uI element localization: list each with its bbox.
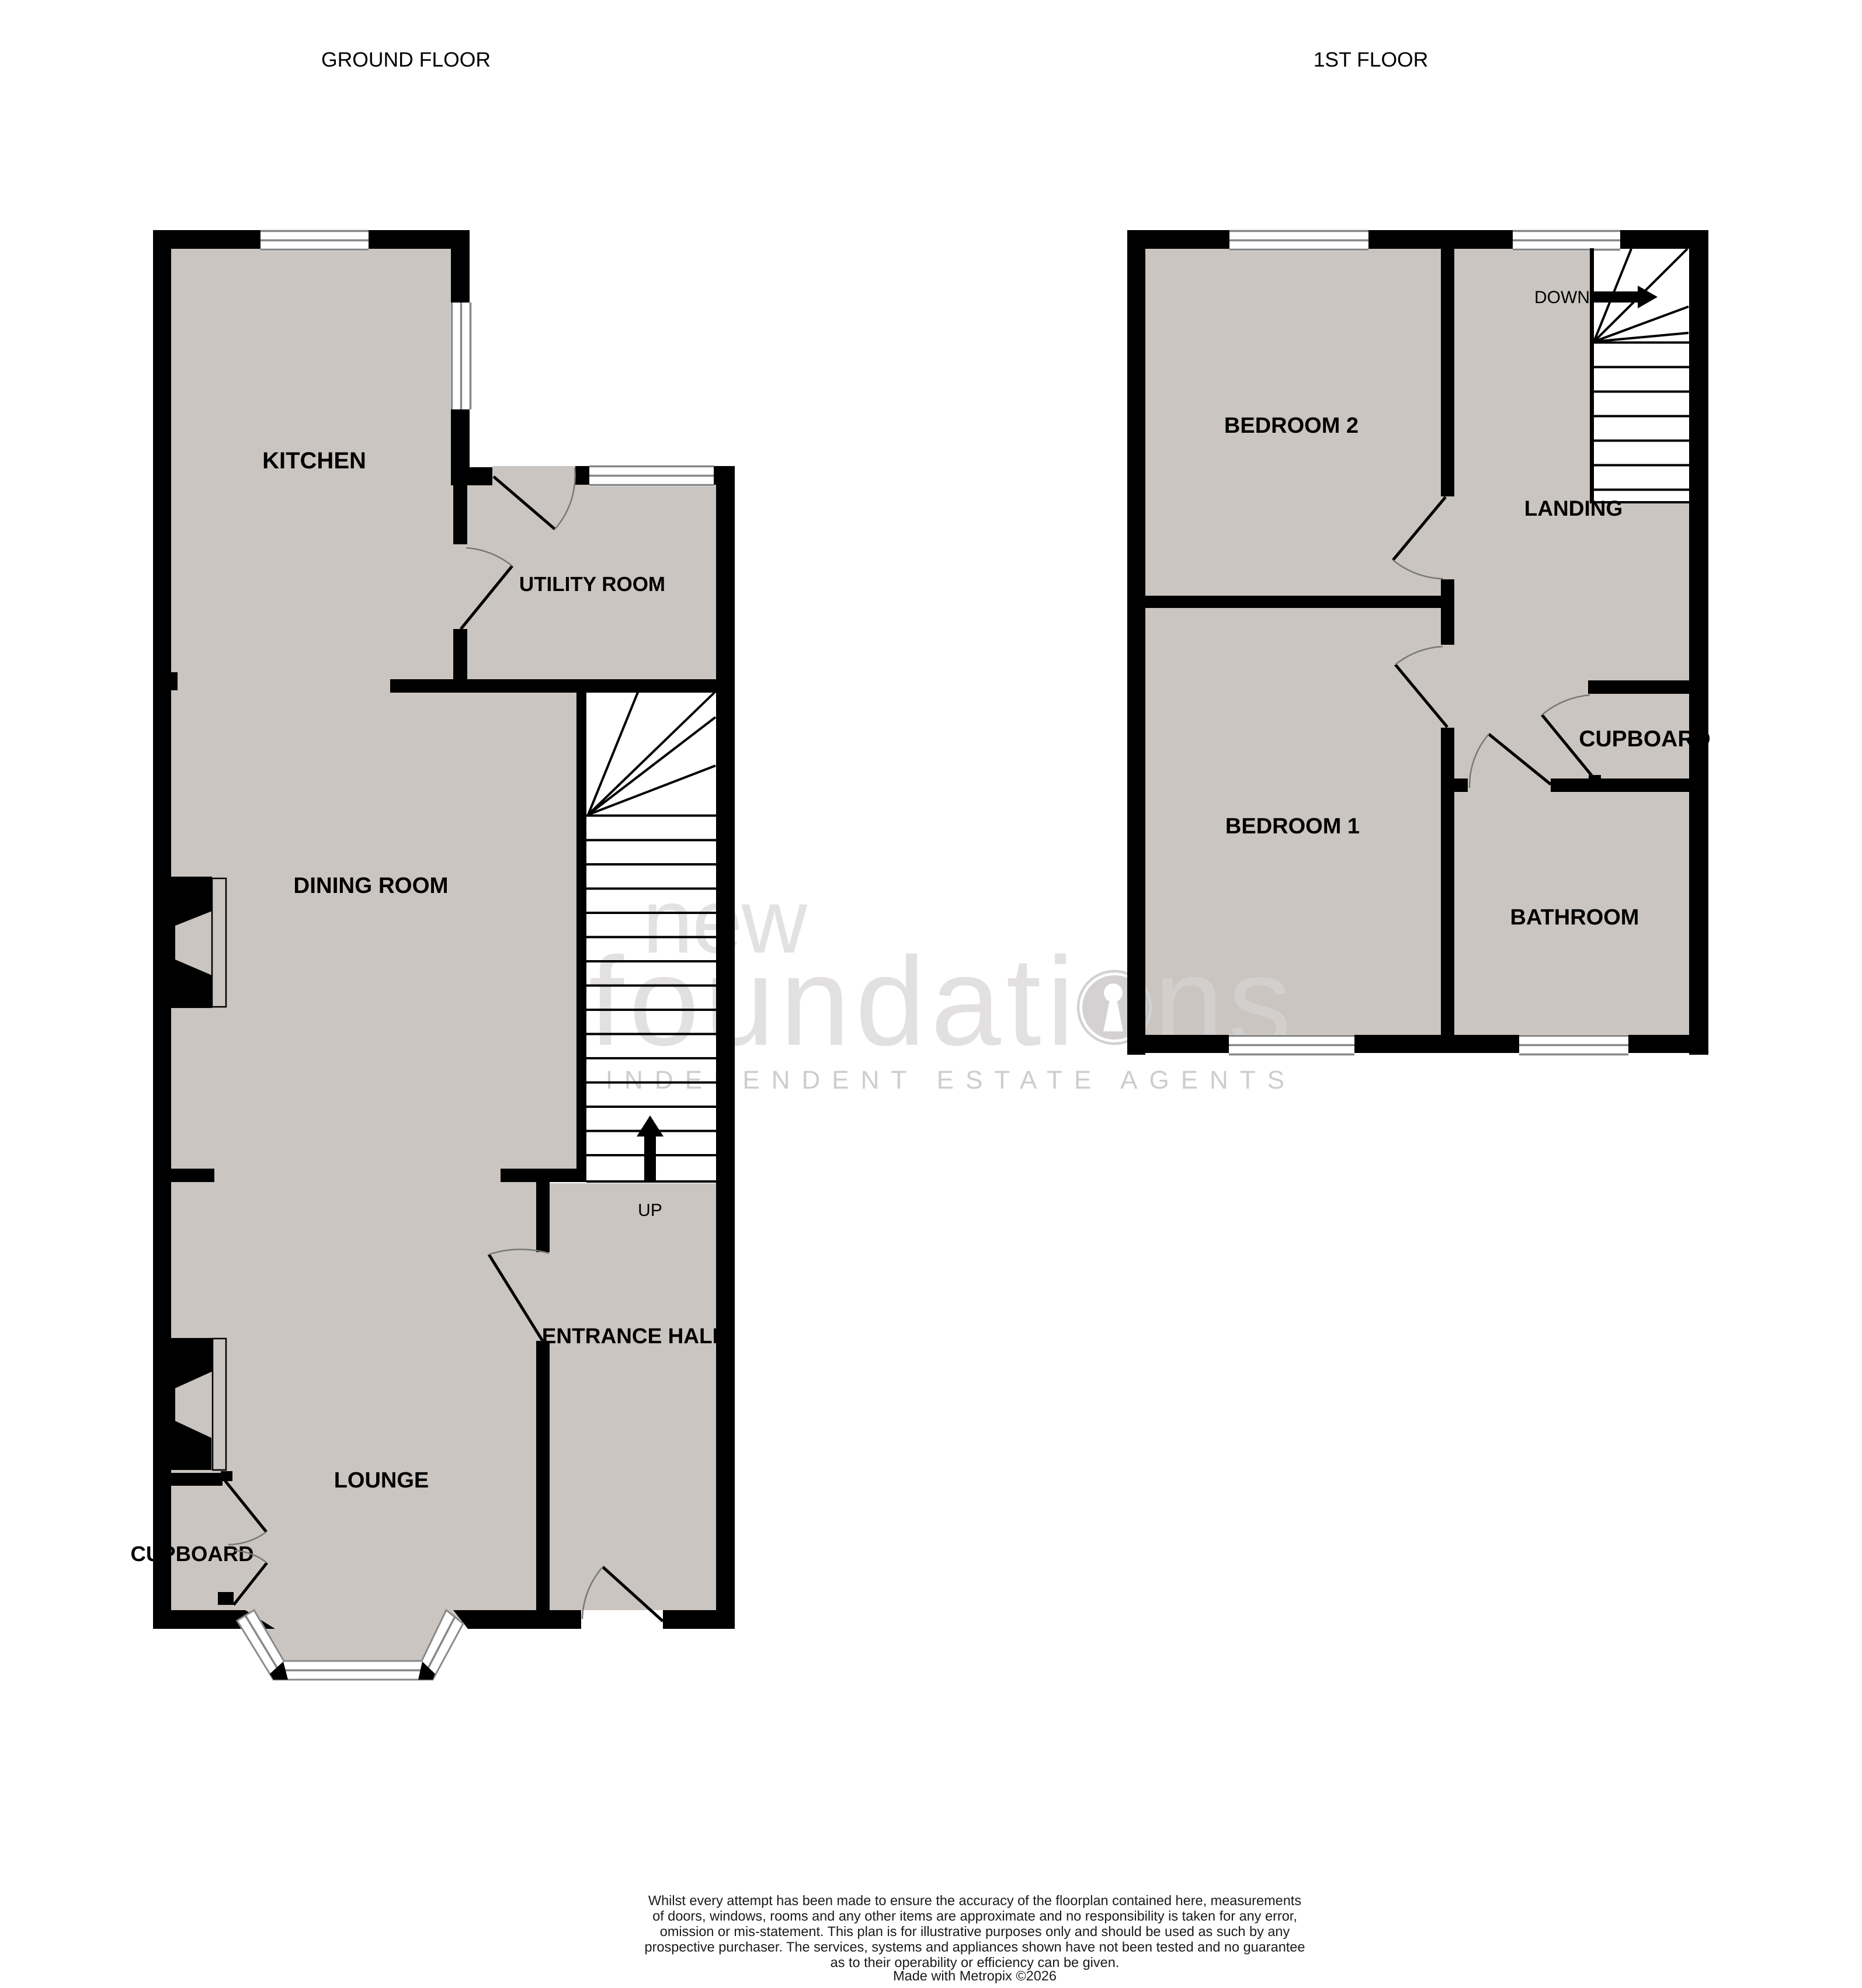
svg-text:UP: UP [638, 1201, 662, 1220]
svg-text:UTILITY ROOM: UTILITY ROOM [519, 573, 665, 596]
svg-text:omission or mis-statement. Thi: omission or mis-statement. This plan is … [660, 1924, 1290, 1939]
svg-text:of doors, windows, rooms and a: of doors, windows, rooms and any other i… [652, 1909, 1297, 1924]
svg-text:BEDROOM 1: BEDROOM 1 [1225, 814, 1360, 839]
svg-text:DOWN: DOWN [1534, 288, 1590, 307]
svg-text:LOUNGE: LOUNGE [334, 1468, 429, 1493]
svg-text:prospective purchaser. The ser: prospective purchaser. The services, sys… [645, 1940, 1305, 1955]
svg-text:foundati: foundati [589, 930, 1080, 1072]
svg-text:KITCHEN: KITCHEN [262, 448, 366, 474]
svg-text:INDEPENDENT ESTATE AGENTS: INDEPENDENT ESTATE AGENTS [606, 1066, 1296, 1094]
svg-text:DINING ROOM: DINING ROOM [293, 873, 448, 898]
svg-text:BEDROOM 2: BEDROOM 2 [1224, 413, 1359, 438]
svg-text:CUPBOARD: CUPBOARD [131, 1542, 254, 1566]
svg-text:LANDING: LANDING [1524, 496, 1623, 520]
svg-text:ENTRANCE HALL: ENTRANCE HALL [542, 1324, 725, 1348]
svg-text:GROUND FLOOR: GROUND FLOOR [321, 48, 491, 71]
svg-text:Made with Metropix ©2026: Made with Metropix ©2026 [893, 1968, 1057, 1983]
svg-text:1ST FLOOR: 1ST FLOOR [1314, 48, 1429, 71]
svg-text:BATHROOM: BATHROOM [1510, 905, 1639, 930]
svg-text:Whilst every attempt has been: Whilst every attempt has been made to en… [648, 1893, 1301, 1908]
